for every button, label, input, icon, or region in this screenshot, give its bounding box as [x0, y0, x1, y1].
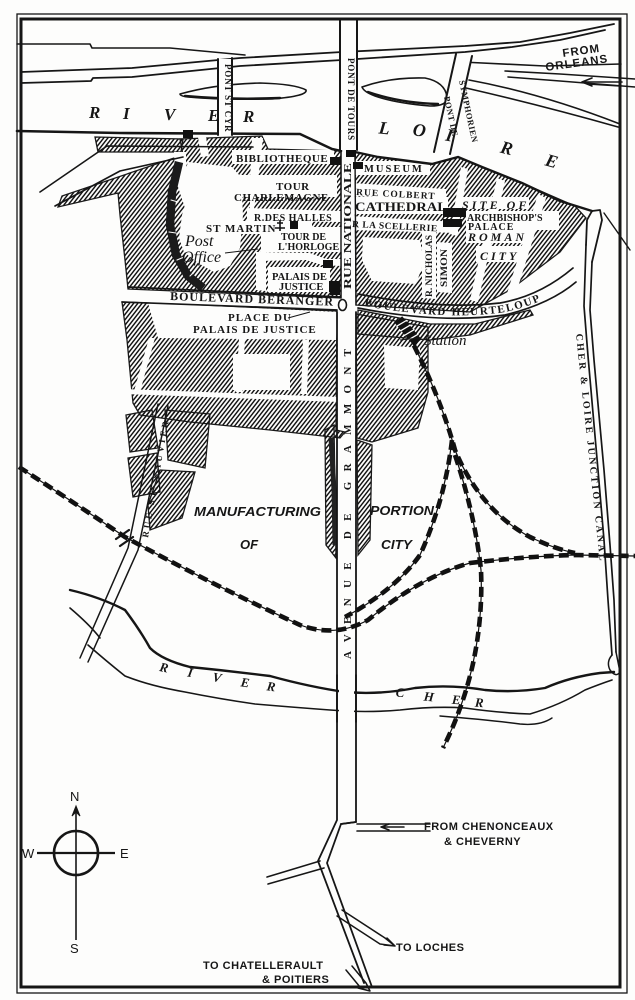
svg-text:S: S — [70, 941, 79, 956]
svg-text:V: V — [164, 105, 177, 124]
svg-text:RUE NATIONALE: RUE NATIONALE — [342, 163, 354, 289]
svg-text:PONT ST CYR: PONT ST CYR — [223, 64, 233, 132]
svg-text:L'HORLOGE: L'HORLOGE — [278, 242, 339, 253]
svg-text:E: E — [120, 846, 129, 861]
svg-text:BIBLIOTHEQUE: BIBLIOTHEQUE — [236, 153, 328, 165]
svg-text:CITY: CITY — [480, 249, 519, 263]
svg-text:O: O — [412, 119, 428, 141]
svg-text:TO CHATELLERAULT: TO CHATELLERAULT — [203, 960, 323, 972]
svg-text:Station: Station — [424, 333, 467, 349]
svg-text:L: L — [377, 117, 391, 138]
svg-text:Office: Office — [182, 249, 221, 266]
svg-text:PONT DE TOURS: PONT DE TOURS — [346, 58, 356, 141]
svg-text:CITY: CITY — [381, 537, 413, 552]
svg-text:SIMON: SIMON — [439, 248, 449, 287]
svg-text:E: E — [450, 692, 461, 708]
svg-text:& POITIERS: & POITIERS — [262, 974, 329, 986]
svg-text:R: R — [242, 107, 254, 126]
svg-text:E: E — [207, 106, 219, 125]
svg-text:R: R — [88, 103, 100, 122]
svg-text:N: N — [70, 789, 79, 804]
svg-text:R: R — [473, 695, 484, 711]
svg-text:CATHEDRAL: CATHEDRAL — [355, 200, 447, 214]
svg-text:ST MARTIN: ST MARTIN — [206, 223, 276, 235]
svg-text:R. NICHOLAS: R. NICHOLAS — [424, 235, 434, 297]
svg-text:FROM CHENONCEAUX: FROM CHENONCEAUX — [424, 821, 554, 833]
svg-text:ROMAN: ROMAN — [467, 230, 527, 244]
svg-text:SITE OF: SITE OF — [462, 198, 529, 212]
svg-text:PORTION: PORTION — [370, 503, 435, 518]
svg-text:CHARLEMAGNE: CHARLEMAGNE — [234, 192, 329, 204]
svg-text:PALAIS DE JUSTICE: PALAIS DE JUSTICE — [193, 324, 317, 336]
svg-text:JUSTICE: JUSTICE — [279, 282, 323, 293]
svg-text:PLACE DU: PLACE DU — [228, 312, 292, 324]
svg-text:TO LOCHES: TO LOCHES — [396, 942, 464, 954]
svg-text:MANUFACTURING: MANUFACTURING — [194, 504, 321, 519]
svg-text:MUSEUM: MUSEUM — [364, 164, 424, 175]
svg-text:W: W — [22, 846, 35, 861]
svg-text:Post: Post — [184, 233, 214, 250]
svg-text:& CHEVERNY: & CHEVERNY — [444, 836, 521, 848]
svg-text:OF: OF — [240, 537, 259, 552]
